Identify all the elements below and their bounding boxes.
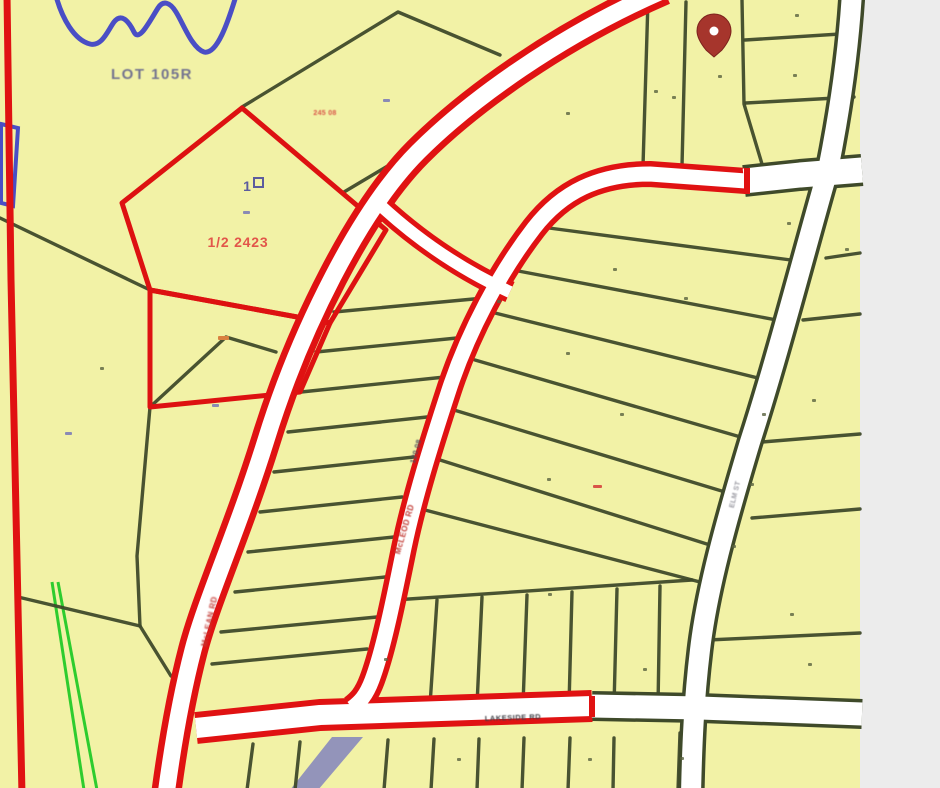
parcel-map-viewport[interactable]: LOT 105R1/2 24231245 08120.08McLEOD RDMc… <box>0 0 940 788</box>
map-land-area <box>0 0 860 788</box>
parcel-speck <box>718 75 722 78</box>
parcel-speck <box>684 297 688 300</box>
parcel-speck <box>620 413 624 416</box>
parcel-speck <box>497 300 501 303</box>
parcel-speck <box>795 14 799 17</box>
parcel-boundary <box>568 738 570 788</box>
parcel-speck <box>548 593 552 596</box>
blue-mark <box>65 432 72 435</box>
parcel-speck <box>547 478 551 481</box>
blue-mark <box>243 211 250 214</box>
parcel-speck <box>762 413 766 416</box>
parcel-speck <box>613 268 617 271</box>
top-road[interactable] <box>744 170 862 181</box>
parcel-speck <box>384 658 388 661</box>
parcel-speck <box>790 613 794 616</box>
parcel-speck <box>812 399 816 402</box>
blue-mark <box>383 99 390 102</box>
map-label: 1/2 2423 <box>208 234 269 250</box>
map-label-illegible: 245 08 <box>313 110 336 117</box>
parcel-speck <box>643 668 647 671</box>
parcel-speck <box>680 757 684 760</box>
parcel-boundary <box>477 739 479 788</box>
parcel-boundary <box>613 738 614 788</box>
blue-mark <box>212 404 219 407</box>
parcel-speck <box>654 90 658 93</box>
parcel-speck <box>672 96 676 99</box>
parcel-boundary <box>522 738 524 788</box>
red-mark <box>593 485 602 488</box>
bottom-road-plain[interactable] <box>592 706 862 714</box>
parcel-speck <box>566 352 570 355</box>
parcel-speck <box>793 74 797 77</box>
parcel-speck <box>566 112 570 115</box>
parcel-speck <box>100 367 104 370</box>
parcel-speck <box>845 248 849 251</box>
map-label: 1 <box>243 178 251 194</box>
parcel-speck <box>588 758 592 761</box>
parcel-map[interactable]: LOT 105R1/2 24231245 08120.08McLEOD RDMc… <box>0 0 940 788</box>
parcel-speck <box>808 663 812 666</box>
parcel-boundary <box>658 586 660 706</box>
parcel-speck <box>732 545 736 548</box>
map-label: LOT 105R <box>111 66 193 83</box>
parcel-speck <box>457 758 461 761</box>
parcel-speck <box>750 483 754 486</box>
parcel-speck <box>787 222 791 225</box>
red-mark <box>218 336 229 340</box>
